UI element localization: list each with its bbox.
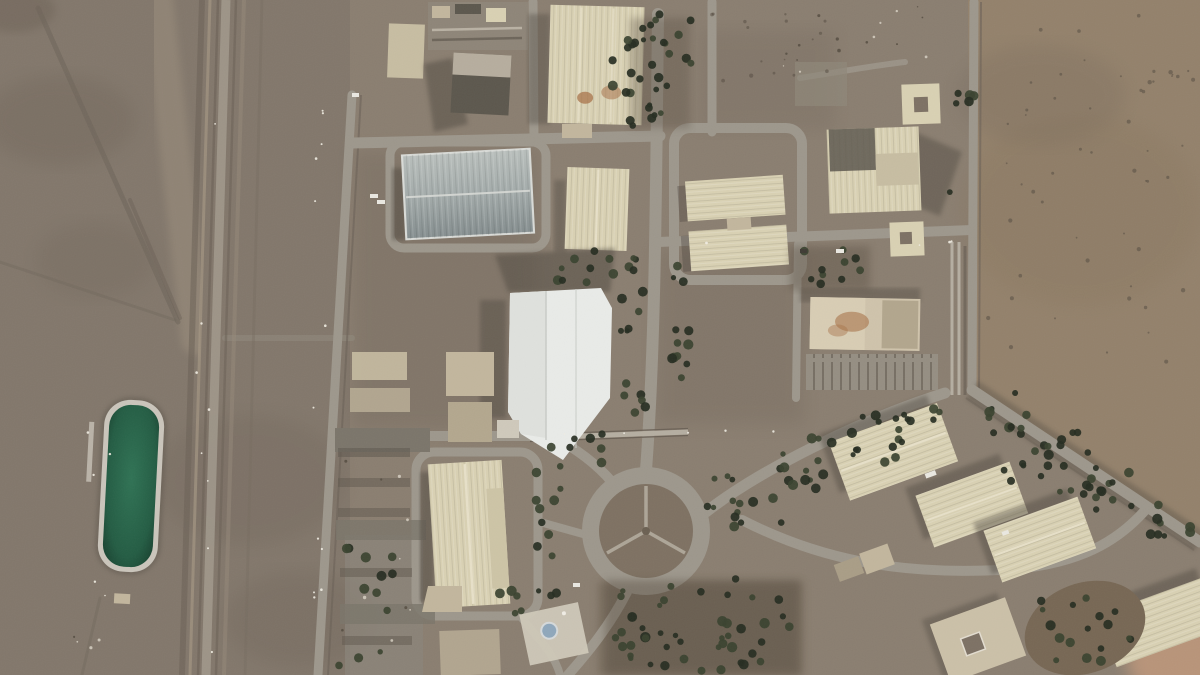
satellite-scene	[0, 0, 1200, 675]
sensor-grain	[0, 0, 1200, 675]
satellite-image	[0, 0, 1200, 675]
